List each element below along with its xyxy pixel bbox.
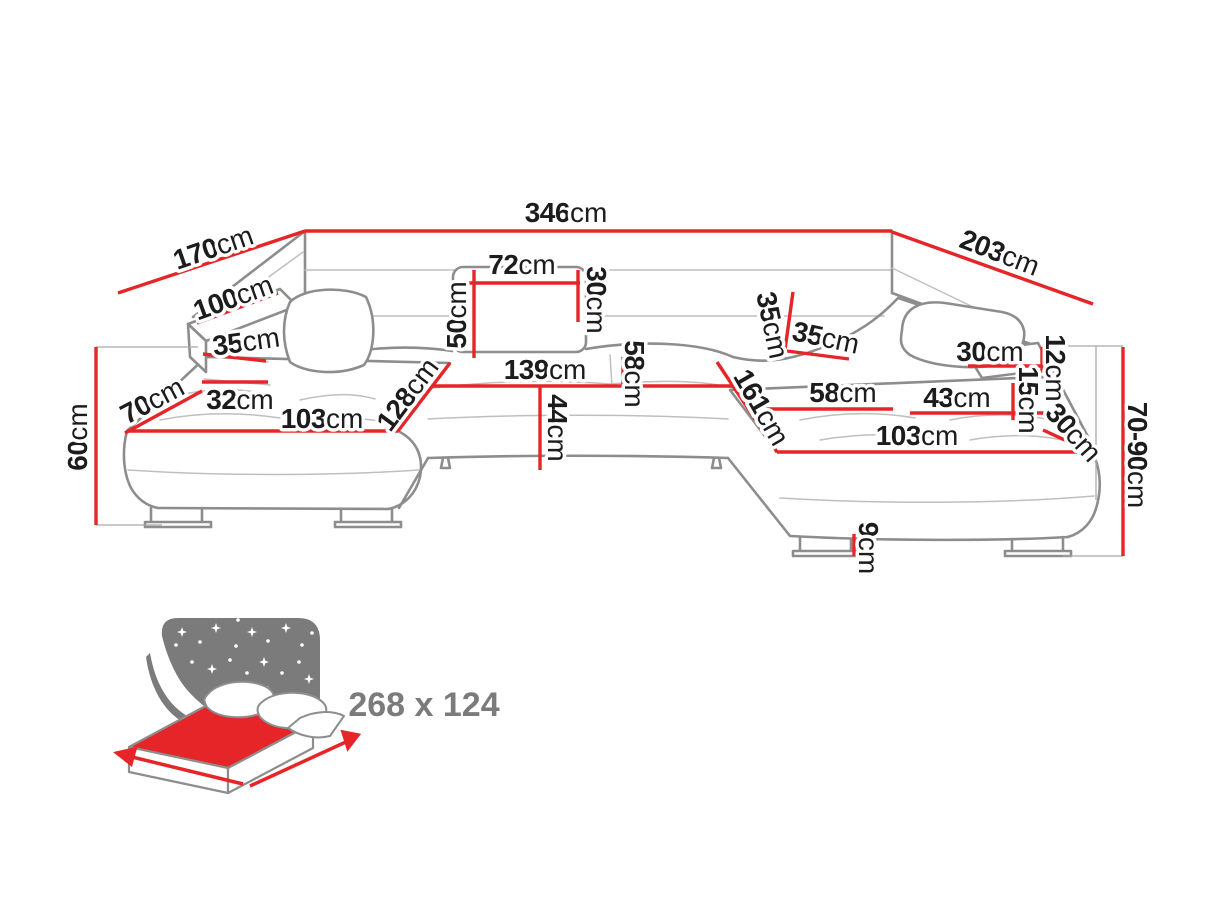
bench-bottom-edge: [428, 456, 728, 458]
bench-upper-edge: [428, 415, 728, 419]
dimension-label-back-width: 346cm: [525, 197, 608, 228]
star-dot: [297, 660, 301, 664]
dimension-label-right-chaise-length: 103cm: [876, 420, 959, 451]
sofa-dimension-diagram: 346cm170cm203cm100cm35cm70cm32cm103cm128…: [0, 0, 1214, 911]
left-chaise-leg-rear: [335, 509, 401, 527]
star-dot: [174, 643, 178, 647]
dimension-label-left-side-height: 60cm: [62, 403, 93, 470]
sleeping-area-size-label: 268 x 124: [348, 686, 499, 724]
dimension-label-leg-height: 9cm: [853, 522, 884, 574]
dimension-label-right-arm-seat-gap: 15cm: [1013, 366, 1044, 433]
star-dot: [190, 660, 194, 664]
dimension-label-headrest-width: 72cm: [488, 249, 555, 280]
star-dot: [245, 671, 249, 675]
dimension-label-center-backrest-height: 58cm: [619, 340, 650, 407]
left-chaise-leg-front: [145, 508, 211, 527]
dimension-label-headrest-height: 30cm: [581, 266, 612, 333]
dimension-label-left-side-depth: 170cm: [169, 219, 257, 275]
left-chaise-inner-slant: [399, 458, 428, 508]
dimension-label-headrest-total-height: 50cm: [441, 281, 472, 348]
left-chaise-bottom: [158, 508, 388, 509]
dimension-label-right-arm-top-width: 30cm: [956, 336, 1023, 367]
dimension-label-overall-height: 70-90cm: [1122, 402, 1153, 508]
star-dot: [198, 640, 202, 644]
seat-center-seam: [610, 355, 612, 386]
bench-foot-right: [712, 458, 721, 468]
right-chaise-bottom: [791, 536, 1068, 540]
star-dot: [234, 644, 238, 648]
star-dot: [236, 618, 240, 622]
sofa-bed-sleeping-area-icon: 268 x 124: [117, 618, 500, 793]
dimension-label-right-seat-front-width: 43cm: [923, 382, 990, 413]
dimension-label-right-side-depth: 203cm: [956, 223, 1044, 282]
star-dot: [280, 671, 284, 675]
dimension-label-right-seat-width: 58cm: [809, 377, 876, 408]
dimension-label-right-backrest-height: 35cm: [750, 289, 794, 361]
bench-foot-left: [441, 458, 450, 468]
star-dot: [228, 658, 232, 662]
backrest-curve-center: [586, 344, 733, 357]
dimension-label-seat-front-height: 44cm: [542, 394, 573, 461]
arrow-width-head: [117, 749, 135, 764]
left-pillow: [284, 290, 373, 372]
dimension-label-left-chaise-length: 103cm: [281, 403, 364, 434]
star-dot: [266, 639, 270, 643]
left-chaise-base-seam: [128, 470, 419, 475]
star-dot: [310, 631, 314, 635]
arrow-length-head: [343, 732, 358, 748]
diagram-canvas: 346cm170cm203cm100cm35cm70cm32cm103cm128…: [0, 0, 1214, 911]
right-chaise-base-seam: [780, 496, 1094, 502]
right-chaise-inner-slant: [728, 458, 790, 536]
right-chaise-leg-front: [793, 537, 859, 556]
star-dot: [300, 643, 304, 647]
dimension-label-left-arm-seat-gap: 32cm: [206, 384, 273, 415]
dimension-label-center-seat-width: 139cm: [504, 354, 587, 385]
